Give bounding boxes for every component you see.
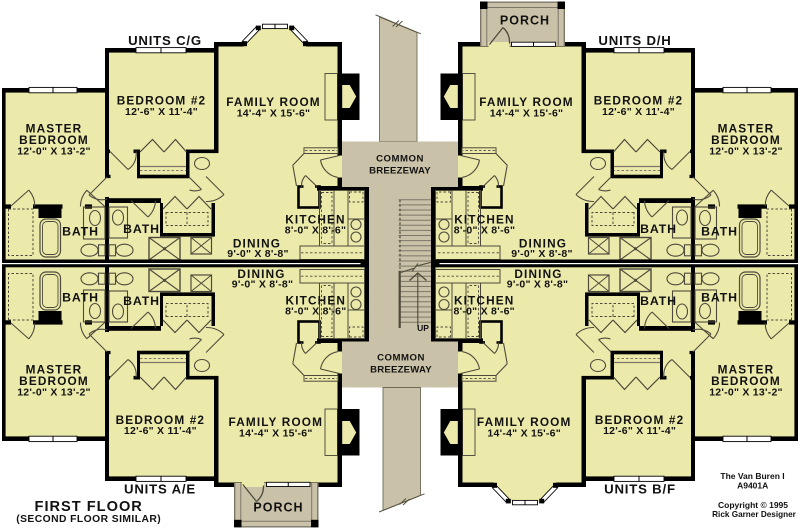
svg-text:12'-0" X 13'-2": 12'-0" X 13'-2"	[17, 145, 91, 157]
svg-text:Rick Garner Designer: Rick Garner Designer	[712, 510, 797, 519]
svg-text:14'-4" X 15'-6": 14'-4" X 15'-6"	[237, 108, 311, 120]
svg-text:12'-0" X 13'-2": 12'-0" X 13'-2"	[17, 386, 91, 398]
svg-text:PORCH: PORCH	[500, 14, 550, 28]
svg-text:BREEZEWAY: BREEZEWAY	[370, 365, 432, 376]
svg-text:COMMON: COMMON	[377, 353, 425, 364]
svg-text:12'-6" X 11'-4": 12'-6" X 11'-4"	[602, 106, 675, 118]
svg-text:8'-0" X 8'-6": 8'-0" X 8'-6"	[454, 306, 515, 318]
svg-text:COMMON: COMMON	[376, 154, 424, 165]
svg-text:BATH: BATH	[123, 294, 160, 308]
svg-text:8'-0" X 8'-6": 8'-0" X 8'-6"	[454, 225, 515, 237]
svg-text:9'-0" X 8'-8": 9'-0" X 8'-8"	[232, 279, 293, 291]
svg-text:PORCH: PORCH	[253, 501, 303, 515]
svg-text:BATH: BATH	[123, 222, 160, 236]
svg-text:BATH: BATH	[701, 225, 738, 239]
svg-text:UP: UP	[417, 323, 429, 333]
svg-text:Copyright © 1995: Copyright © 1995	[718, 500, 788, 510]
svg-text:BREEZEWAY: BREEZEWAY	[369, 166, 431, 177]
svg-text:BATH: BATH	[62, 225, 99, 239]
svg-text:BATH: BATH	[640, 294, 677, 308]
svg-text:9'-0" X 8'-8": 9'-0" X 8'-8"	[507, 279, 568, 291]
svg-text:12'-6" X 11'-4": 12'-6" X 11'-4"	[125, 106, 198, 118]
svg-text:8'-0" X 8'-6": 8'-0" X 8'-6"	[285, 306, 346, 318]
svg-text:UNITS C/G: UNITS C/G	[128, 33, 202, 48]
svg-text:8'-0" X 8'-6": 8'-0" X 8'-6"	[285, 225, 346, 237]
svg-text:9'-0" X 8'-8": 9'-0" X 8'-8"	[227, 248, 288, 260]
svg-text:BATH: BATH	[62, 291, 99, 305]
svg-text:A9401A: A9401A	[737, 480, 768, 490]
svg-text:FIRST FLOOR: FIRST FLOOR	[35, 499, 143, 515]
svg-text:BATH: BATH	[701, 291, 738, 305]
svg-text:12'-0" X 13'-2": 12'-0" X 13'-2"	[709, 145, 783, 157]
svg-text:12'-0" X 13'-2": 12'-0" X 13'-2"	[709, 386, 783, 398]
svg-text:12'-6" X 11'-4": 12'-6" X 11'-4"	[603, 425, 676, 437]
svg-text:(SECOND FLOOR SIMILAR): (SECOND FLOOR SIMILAR)	[16, 514, 161, 525]
svg-text:14'-4" X 15'-6": 14'-4" X 15'-6"	[490, 108, 564, 120]
svg-text:14'-4" X 15'-6": 14'-4" X 15'-6"	[239, 428, 313, 440]
svg-text:UNITS B/F: UNITS B/F	[604, 482, 676, 497]
svg-text:BATH: BATH	[640, 222, 677, 236]
svg-text:9'-0" X 8'-8": 9'-0" X 8'-8"	[511, 248, 572, 260]
svg-text:12'-6" X 11'-4": 12'-6" X 11'-4"	[124, 425, 197, 437]
svg-text:UNITS D/H: UNITS D/H	[598, 33, 671, 48]
svg-text:UNITS A/E: UNITS A/E	[124, 482, 196, 497]
svg-text:14'-4" X 15'-6": 14'-4" X 15'-6"	[487, 428, 561, 440]
